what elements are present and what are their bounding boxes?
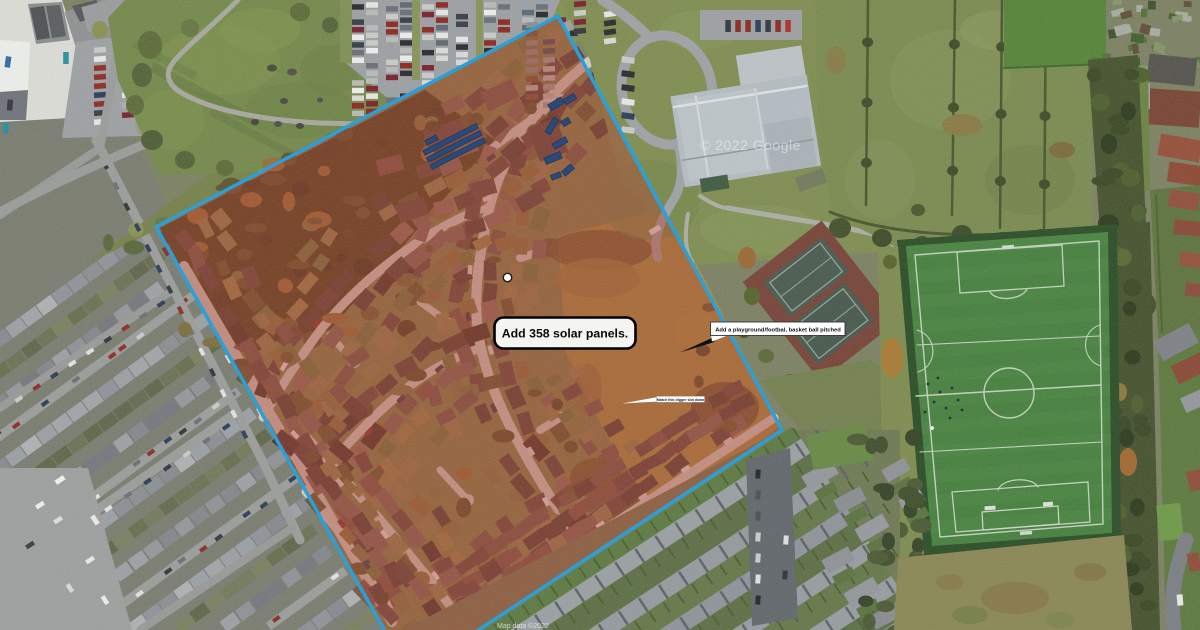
svg-text:Match this digger slot down: Match this digger slot down <box>657 398 705 402</box>
svg-text:Add 358 solar panels.: Add 358 solar panels. <box>502 327 628 341</box>
svg-text:Map data ©2022: Map data ©2022 <box>497 622 549 630</box>
svg-text:Add a playground/footbal, bask: Add a playground/footbal, basket ball pi… <box>715 327 841 333</box>
svg-text:© 2022 Google: © 2022 Google <box>700 137 801 153</box>
